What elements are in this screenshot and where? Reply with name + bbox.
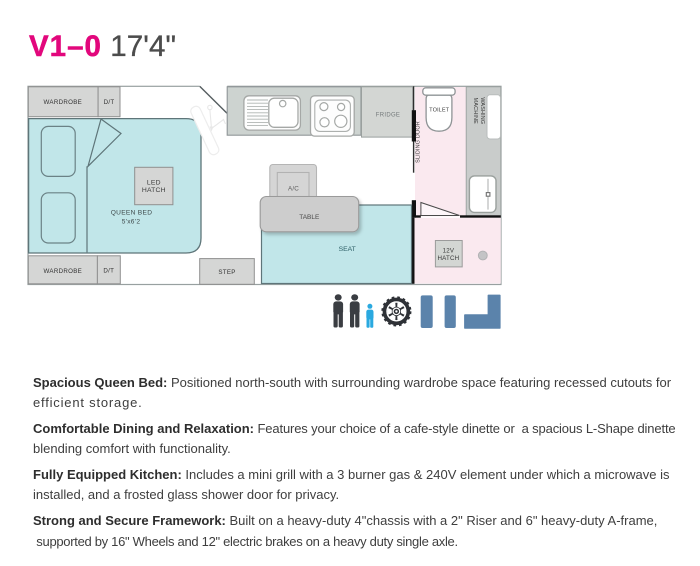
- svg-text:SEAT: SEAT: [339, 246, 356, 253]
- svg-text:STEP: STEP: [218, 269, 235, 276]
- svg-text:12V: 12V: [443, 248, 455, 255]
- svg-text:LED: LED: [147, 180, 161, 187]
- svg-text:D/T: D/T: [103, 268, 114, 275]
- svg-text:TOILET: TOILET: [429, 108, 449, 114]
- svg-text:FRIDGE: FRIDGE: [376, 113, 400, 119]
- svg-text:SLIDING DOOR: SLIDING DOOR: [416, 121, 422, 163]
- svg-text:A/C: A/C: [288, 186, 299, 193]
- svg-text:D/T: D/T: [104, 99, 115, 106]
- svg-text:5'x6'2: 5'x6'2: [122, 218, 141, 225]
- svg-text:WARDROBE: WARDROBE: [43, 99, 82, 106]
- svg-text:TABLE: TABLE: [299, 214, 320, 221]
- svg-text:HATCH: HATCH: [437, 255, 459, 262]
- svg-text:QUEEN BED: QUEEN BED: [111, 210, 153, 217]
- svg-text:WASHINGMACHINE: WASHINGMACHINE: [472, 97, 485, 124]
- svg-text:WARDROBE: WARDROBE: [43, 268, 82, 275]
- svg-text:HATCH: HATCH: [142, 187, 166, 194]
